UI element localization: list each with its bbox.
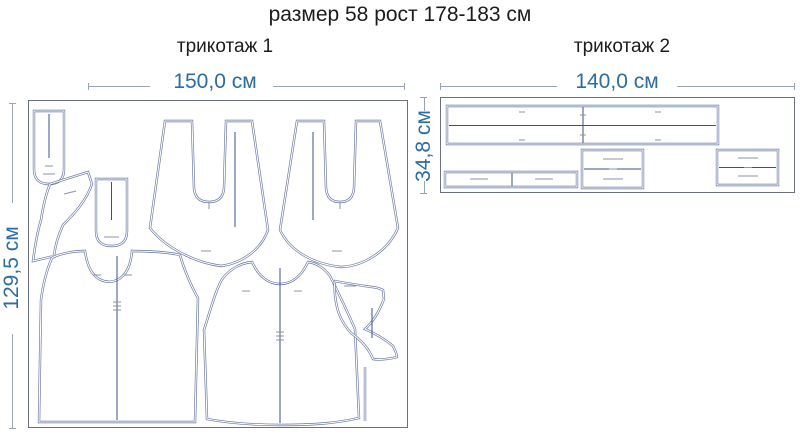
page-title: размер 58 рост 178-183 см bbox=[0, 3, 800, 27]
fabric-outline-knit1 bbox=[29, 101, 408, 428]
pattern-piece-body-back bbox=[39, 251, 198, 422]
dimension-tick bbox=[440, 83, 441, 90]
dimension-line bbox=[12, 334, 13, 428]
dimension-width-knit1: 150,0 см bbox=[115, 69, 315, 95]
dimension-line bbox=[12, 103, 13, 203]
dimension-height-knit2: 34,8 см bbox=[411, 96, 437, 196]
dimension-tick bbox=[9, 428, 16, 429]
pattern-piece-narrow-band bbox=[445, 172, 577, 187]
pattern-piece-hood-side bbox=[33, 172, 92, 261]
section-label-knit2: трикотаж 2 bbox=[522, 36, 722, 58]
pattern-piece-band-2 bbox=[96, 179, 127, 246]
pattern-piece-band-1 bbox=[34, 111, 64, 184]
layout-panel-knit1 bbox=[28, 100, 408, 428]
pattern-piece-trouser-left bbox=[150, 121, 268, 266]
pattern-piece-long-band bbox=[447, 106, 718, 144]
pattern-piece-collar bbox=[335, 281, 397, 359]
dimension-tick bbox=[88, 83, 89, 90]
section-label-knit1: трикотаж 1 bbox=[125, 36, 325, 58]
pattern-layout-page: размер 58 рост 178-183 см трикотаж 1 три… bbox=[0, 0, 800, 435]
dimension-tick bbox=[404, 83, 405, 90]
pattern-piece-cuff-2 bbox=[717, 150, 778, 185]
layout-panel-knit2 bbox=[440, 97, 795, 193]
dimension-tick bbox=[9, 103, 16, 104]
dimension-tick bbox=[794, 83, 795, 90]
dimension-width-knit2: 140,0 см bbox=[517, 69, 717, 95]
dimension-height-knit1: 129,5 см bbox=[0, 198, 25, 338]
pattern-piece-cuff-1 bbox=[582, 150, 643, 188]
pattern-piece-trouser-right bbox=[280, 121, 398, 267]
